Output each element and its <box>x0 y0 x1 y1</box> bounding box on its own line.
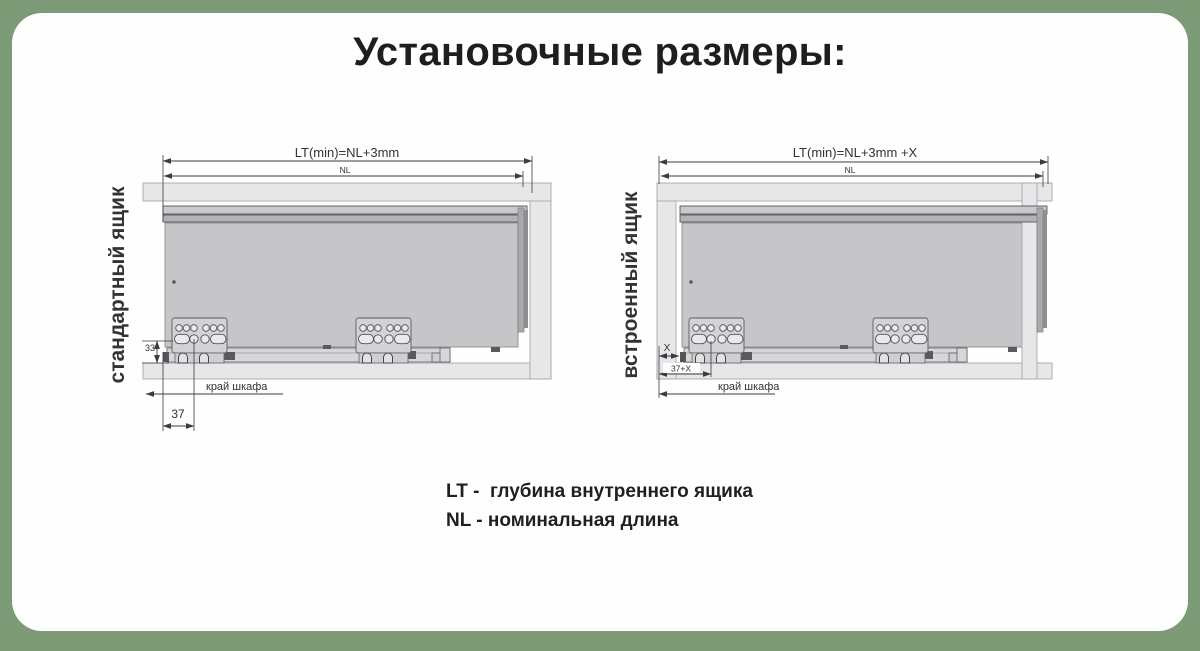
svg-text:X: X <box>664 343 671 354</box>
diagram-builtin: встроенный ящик LT(min)=NL+3mm +X NL X <box>619 145 1052 398</box>
drawer-assembly <box>680 223 1035 363</box>
svg-text:NL: NL <box>845 165 856 175</box>
diagram-standard-label: стандартный ящик <box>106 186 129 383</box>
svg-text:LT(min)=NL+3mm +X: LT(min)=NL+3mm +X <box>793 145 918 160</box>
installation-diagrams: стандартный ящик LT(min)=NL+3mm NL 33 <box>0 0 1200 651</box>
cabinet-bottom-panel <box>657 363 1052 379</box>
cabinet-back-panel <box>530 200 551 379</box>
drawer-back-edge <box>1037 208 1043 332</box>
svg-text:37: 37 <box>171 407 185 421</box>
slide-upper-bar <box>163 206 527 214</box>
drawer-assembly <box>163 223 518 363</box>
legend-item-nl: NL - номинальная длина <box>446 506 753 535</box>
drawer-back-edge <box>518 208 524 332</box>
cabinet-top-panel <box>143 183 551 201</box>
svg-text:NL: NL <box>340 165 351 175</box>
drawer-back-edge-dark <box>1043 210 1047 328</box>
svg-text:33: 33 <box>145 343 155 353</box>
svg-text:край шкафа: край шкафа <box>718 381 780 393</box>
cabinet-bottom-panel <box>143 363 551 379</box>
slide-lower-bar <box>163 215 524 222</box>
cabinet-top-panel <box>657 183 1052 201</box>
page: { "title": "Установочные размеры:", "col… <box>0 0 1200 651</box>
svg-text:LT(min)=NL+3mm: LT(min)=NL+3mm <box>295 145 400 160</box>
cabinet-edge-callout-standard: край шкафа <box>146 381 283 394</box>
diagram-standard: стандартный ящик LT(min)=NL+3mm NL 33 <box>106 145 551 431</box>
cabinet-edge-callout-builtin: край шкафа <box>659 381 780 394</box>
diagram-builtin-label: встроенный ящик <box>619 191 642 379</box>
legend-item-lt: LT - глубина внутреннего ящика <box>446 477 753 506</box>
svg-text:край шкафа: край шкафа <box>206 381 268 393</box>
svg-text:37+X: 37+X <box>671 364 691 374</box>
slide-upper-bar <box>680 206 1047 214</box>
legend: LT - глубина внутреннего ящика NL - номи… <box>446 477 753 535</box>
drawer-back-edge-dark <box>524 210 528 328</box>
slide-lower-bar <box>680 215 1044 222</box>
